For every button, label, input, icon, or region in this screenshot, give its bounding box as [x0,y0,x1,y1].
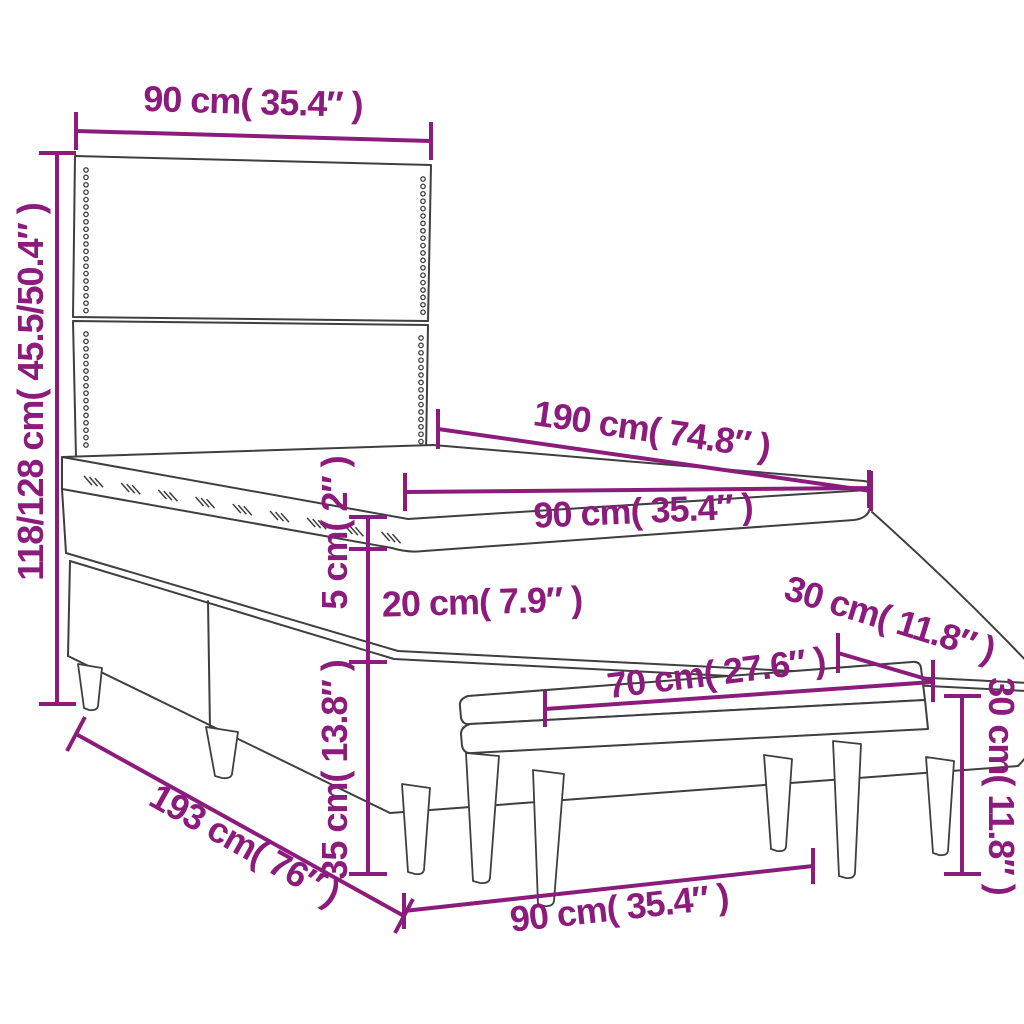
dim-floor-width: 90 cm( 35.4″ ) [404,848,813,940]
bed-leg-head-left [78,664,102,710]
bed-dimension-diagram: 90 cm( 35.4″ ) 118/128 cm( 45.5/50.4″ ) … [0,0,1024,1024]
dim-label-mattress-width: 90 cm( 35.4″ ) [533,485,754,536]
diagram-canvas: 90 cm( 35.4″ ) 118/128 cm( 45.5/50.4″ ) … [0,0,1024,1024]
dim-label-overall-height: 118/128 cm( 45.5/50.4″ ) [10,203,51,581]
dim-headboard-width: 90 cm( 35.4″ ) [76,78,431,160]
bench-leg-front-right [833,741,861,878]
bed-leg-side-left [206,727,238,778]
dim-label-headboard-width: 90 cm( 35.4″ ) [143,78,363,125]
dim-label-base-height: 35 cm( 13.8″ ) [314,660,355,879]
mattress [62,445,1024,684]
headboard-lower-panel [73,321,428,458]
base-panel-seam [208,601,210,729]
dim-base-height: 35 cm( 13.8″ ) [314,660,387,879]
headboard [73,156,431,458]
headboard-upper-panel [73,156,431,321]
bed-leg-foot-right [926,757,954,855]
bed-leg-foot-left [402,784,430,874]
dim-label-topper-height: 5 cm( 2″ ) [314,456,355,609]
dim-label-mattress-height: 20 cm( 7.9″ ) [381,578,582,624]
dim-overall-height: 118/128 cm( 45.5/50.4″ ) [10,153,76,704]
mattress-left-edge [62,489,66,553]
base-left-edge [68,561,70,656]
bench-leg-back-right [764,755,792,851]
bench-leg-back-left [533,770,564,906]
bench-leg-front-left [466,753,499,883]
dim-bench-height: 30 cm( 11.8″ ) [944,677,1022,894]
dim-label-bench-height: 30 cm( 11.8″ ) [981,677,1022,894]
dim-mattress-height: 20 cm( 7.9″ ) [349,549,583,662]
dim-floor-length: 193 cm( 76″ ) [67,717,413,933]
